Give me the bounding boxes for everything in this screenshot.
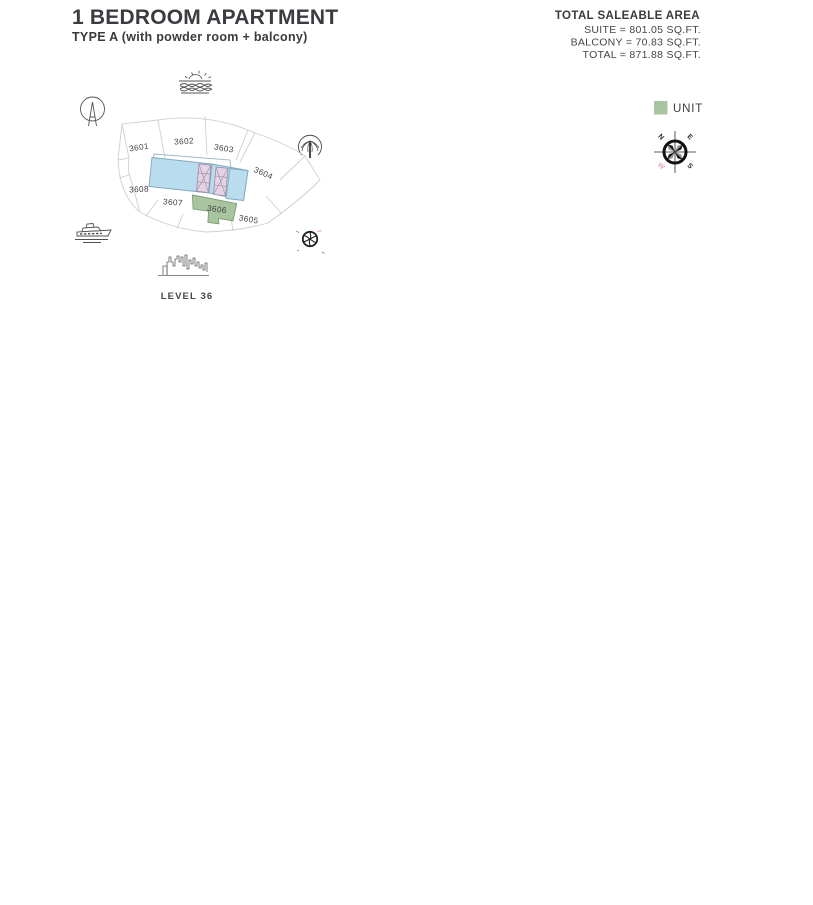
svg-text:3607: 3607 [163, 197, 183, 207]
svg-text:BALCONY = 70.83 SQ.FT.: BALCONY = 70.83 SQ.FT. [571, 37, 701, 49]
svg-text:3608: 3608 [129, 184, 149, 194]
svg-text:3602: 3602 [174, 136, 194, 146]
svg-text:TOTAL = 871.88 SQ.FT.: TOTAL = 871.88 SQ.FT. [583, 49, 701, 61]
svg-text:SUITE = 801.05 SQ.FT.: SUITE = 801.05 SQ.FT. [584, 24, 701, 36]
svg-text:TOTAL SALEABLE AREA: TOTAL SALEABLE AREA [555, 10, 700, 22]
svg-text:TYPE A (with powder room + bal: TYPE A (with powder room + balcony) [72, 30, 308, 44]
svg-text:1 BEDROOM APARTMENT: 1 BEDROOM APARTMENT [72, 6, 338, 29]
svg-text:UNIT: UNIT [673, 103, 703, 115]
svg-text:LEVEL 36: LEVEL 36 [161, 291, 213, 302]
